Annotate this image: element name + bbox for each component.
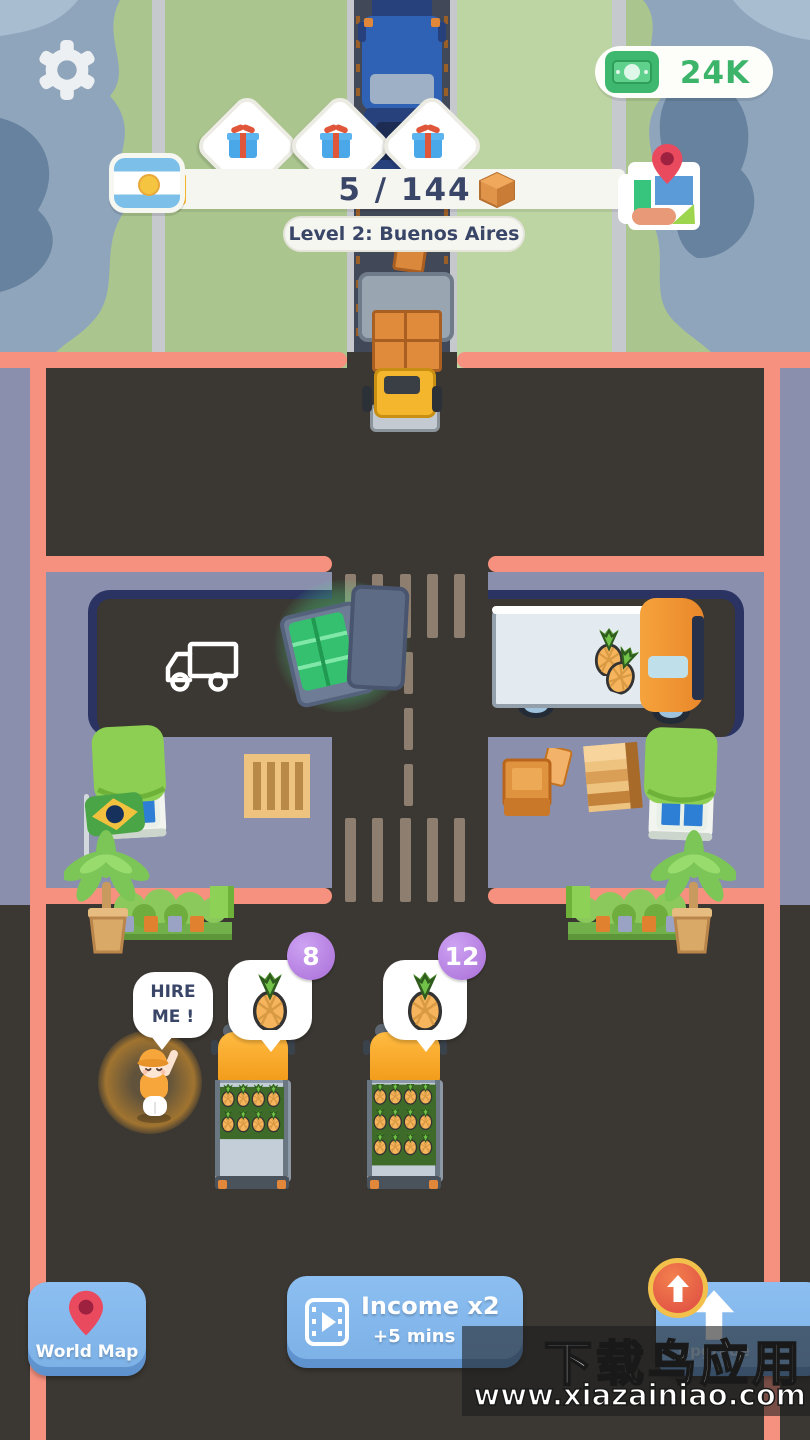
pineapple-icon [248, 972, 292, 1030]
wall-mid-right [488, 556, 780, 572]
lane-dash [404, 764, 413, 806]
gift-milestone-3 [394, 108, 462, 176]
crate-stack [372, 310, 442, 372]
wall-top-left [0, 352, 347, 368]
gift-milestone-1 [209, 108, 277, 176]
wall-top-right [457, 352, 810, 368]
gift-milestone-2 [302, 108, 370, 176]
wall-mid-left [30, 556, 332, 572]
game-screen: 8 12 HIRE ME ! [0, 0, 810, 1440]
money-value: 24K [667, 55, 763, 91]
settings-button[interactable] [36, 38, 98, 102]
world-map-button[interactable]: World Map [28, 1282, 146, 1376]
wooden-crate [502, 748, 574, 822]
pineapple-icon [403, 972, 447, 1030]
pineapple-cargo [220, 1084, 284, 1142]
level-label: Level 2: Buenos Aires [283, 216, 525, 252]
map-pin-icon [69, 1290, 103, 1336]
minimap-button[interactable] [614, 140, 708, 238]
forklift[interactable] [362, 368, 444, 430]
income-label-1: Income x2 [361, 1292, 500, 1320]
level-progress-text: 5 / 144 [305, 172, 505, 208]
cargo-count-badge-2: 12 [438, 932, 486, 980]
crosswalk-bottom [345, 818, 465, 902]
ad-video-icon [305, 1298, 349, 1346]
gear-icon [38, 40, 97, 100]
watermark-url: www.xiazainiao.com [473, 1378, 806, 1412]
money-counter: 24K [595, 46, 773, 98]
package-icon [478, 171, 516, 209]
gift-icon [225, 124, 261, 160]
cargo-count-badge-1: 8 [287, 932, 335, 980]
outer-strip-left [0, 352, 30, 905]
gift-icon [318, 124, 354, 160]
hire-line1: HIRE [133, 980, 213, 1005]
wooden-stairs [581, 740, 645, 815]
hire-line2: ME ! [133, 1005, 213, 1030]
up-arrow-icon [666, 1275, 690, 1302]
argentina-flag-icon [109, 153, 185, 213]
delivery-truck-pineapples[interactable] [492, 598, 706, 728]
income-label-2: +5 mins [373, 1326, 455, 1347]
wooden-pallet [244, 754, 310, 818]
cargo-count: 8 [302, 942, 319, 971]
cash-icon [605, 51, 659, 93]
outer-strip-right [780, 352, 810, 905]
garden-left [64, 824, 240, 956]
truck-outline-icon[interactable] [158, 638, 242, 696]
cargo-count: 12 [445, 942, 480, 971]
world-map-label: World Map [28, 1342, 146, 1362]
lane-dash [404, 708, 413, 750]
garden-right [560, 824, 736, 956]
watermark-overlay: 下载鸟应用 www.xiazainiao.com [462, 1326, 810, 1416]
pineapple-cargo [372, 1084, 436, 1166]
upgrade-alert-badge[interactable] [648, 1258, 708, 1318]
gift-icon [410, 124, 446, 160]
hire-me-bubble[interactable]: HIRE ME ! [133, 972, 213, 1038]
hire-worker-character[interactable] [126, 1042, 182, 1124]
